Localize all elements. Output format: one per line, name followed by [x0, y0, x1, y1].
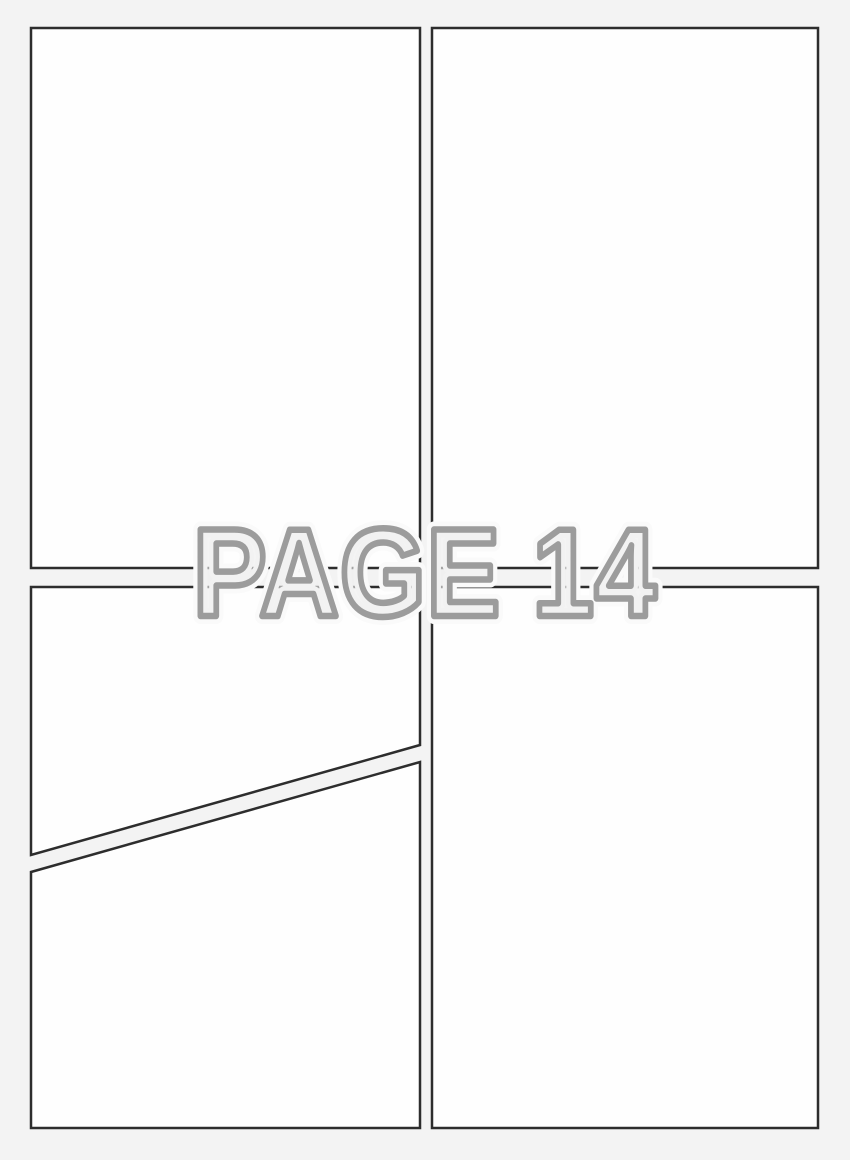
- panel-top-left: [31, 28, 420, 568]
- comic-template-page: PAGE 14 PAGE 14 PAGE 14: [0, 0, 850, 1160]
- page-number-watermark: PAGE 14: [193, 504, 657, 643]
- panel-top-right: [432, 28, 818, 568]
- panel-bottom-right: [432, 587, 818, 1128]
- comic-page-canvas: PAGE 14 PAGE 14 PAGE 14: [0, 0, 850, 1160]
